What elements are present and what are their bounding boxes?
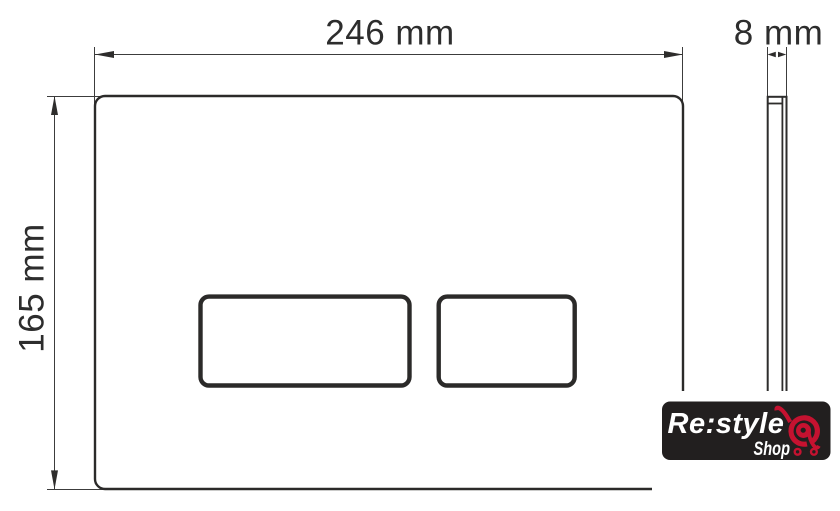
svg-text:8 mm: 8 mm bbox=[734, 14, 824, 53]
svg-text:246 mm: 246 mm bbox=[325, 14, 454, 53]
svg-text:165 mm: 165 mm bbox=[13, 223, 52, 352]
svg-text:Shop: Shop bbox=[754, 438, 791, 460]
svg-text:Re:style: Re:style bbox=[668, 408, 785, 440]
